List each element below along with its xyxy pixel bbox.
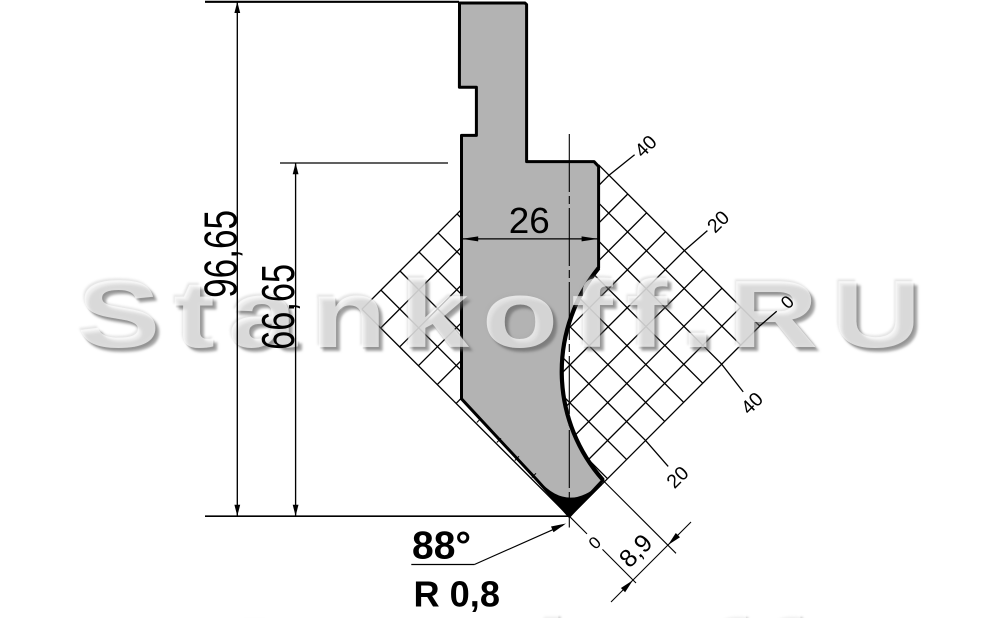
- svg-text:0: 0: [585, 533, 605, 553]
- svg-text:66,65: 66,65: [252, 264, 304, 350]
- svg-text:0: 0: [777, 292, 798, 313]
- svg-text:20: 20: [703, 207, 734, 238]
- svg-text:88°: 88°: [412, 524, 471, 567]
- svg-text:26: 26: [509, 200, 550, 241]
- svg-text:8,9: 8,9: [614, 529, 658, 573]
- svg-text:20: 20: [663, 462, 694, 493]
- svg-text:40: 40: [631, 131, 662, 162]
- svg-text:40: 40: [737, 388, 768, 419]
- svg-text:96,65: 96,65: [194, 210, 246, 298]
- svg-text:R 0,8: R 0,8: [414, 573, 501, 614]
